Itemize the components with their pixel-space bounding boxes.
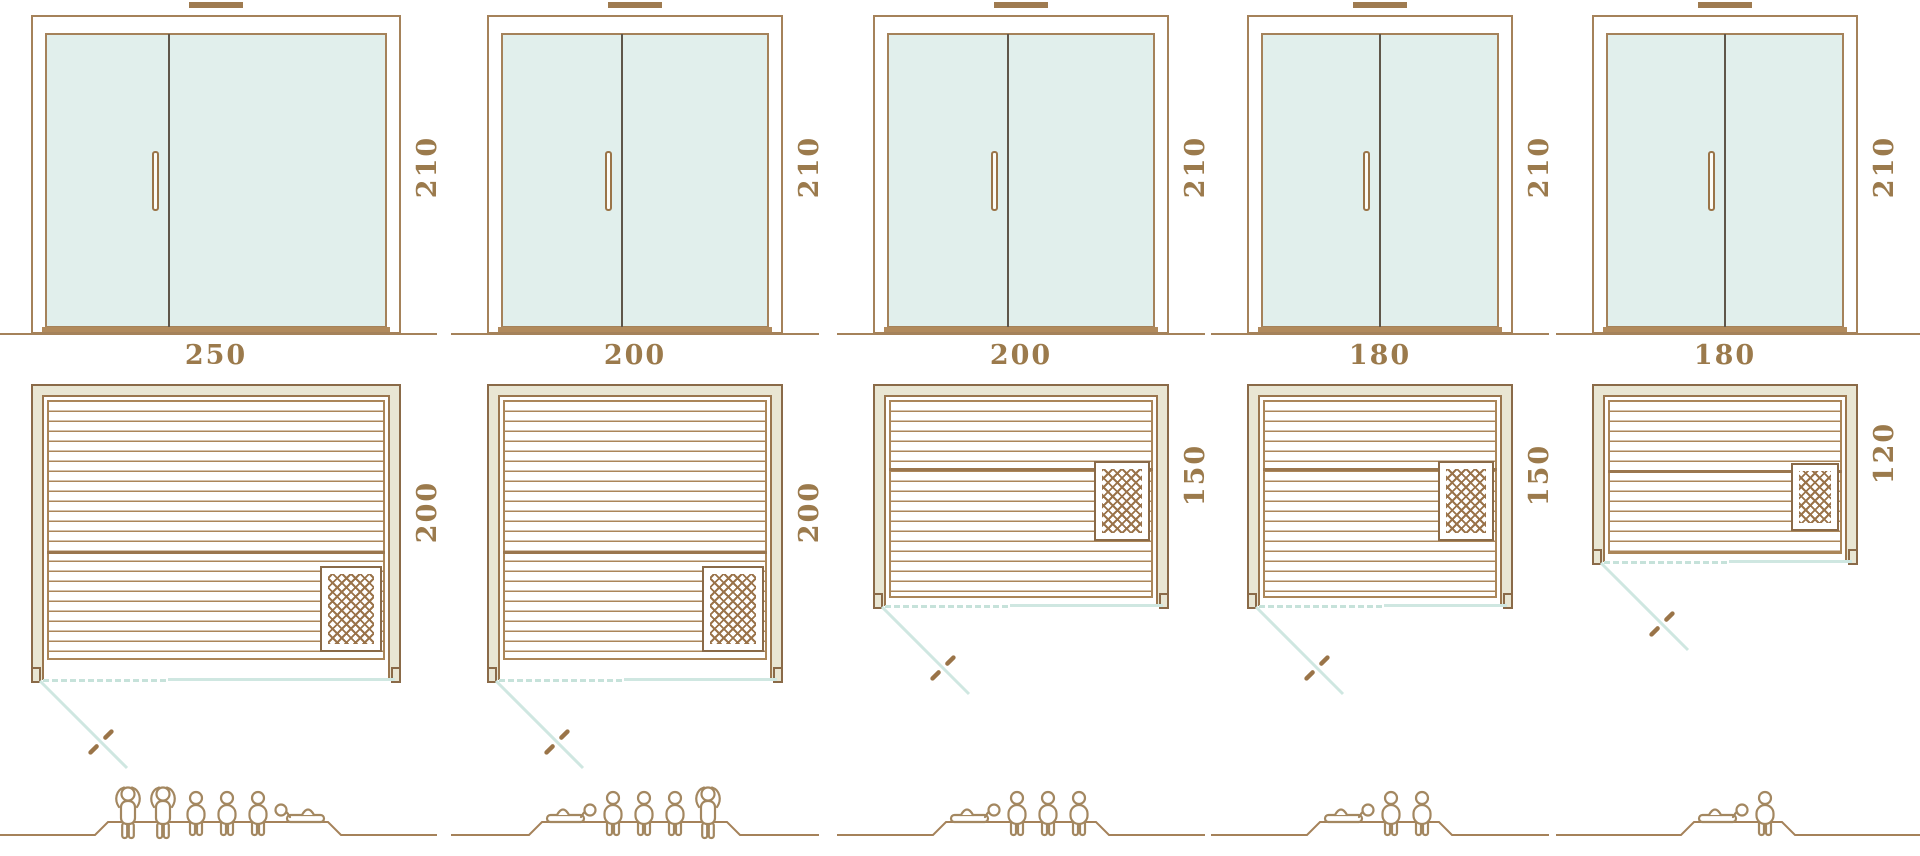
height-dimension-label: 210 <box>1870 122 1900 212</box>
door-sill <box>1258 327 1502 332</box>
door-divider-line <box>1724 34 1726 327</box>
person-sitting-icon <box>636 792 653 835</box>
height-dimension-label: 210 <box>1525 122 1555 212</box>
door-front-elevation <box>873 15 1169 334</box>
glass-door-panels <box>45 33 387 328</box>
height-dimension-label: 210 <box>413 122 443 212</box>
depth-dimension-label: 150 <box>1181 430 1211 520</box>
plan-interior <box>42 395 390 680</box>
capacity-figures <box>837 786 1205 844</box>
person-sitting-icon <box>667 792 684 835</box>
person-lying-icon <box>547 805 596 823</box>
plan-interior <box>884 395 1158 606</box>
capacity-figures <box>1211 786 1549 844</box>
person-standing-icon <box>696 788 719 839</box>
capacity-ground-line <box>1211 822 1549 835</box>
heater-stones-lattice <box>1799 471 1831 523</box>
glass-front-line <box>168 678 395 681</box>
depth-dimension-label: 200 <box>413 467 443 557</box>
heater <box>1791 463 1839 531</box>
person-sitting-icon <box>219 792 236 835</box>
roof-vent-bar <box>1353 2 1407 8</box>
glass-door-panels <box>1261 33 1499 328</box>
person-lying-icon <box>1699 805 1748 823</box>
glass-door-panels <box>887 33 1155 328</box>
person-standing-icon <box>151 788 174 839</box>
roof-vent-bar <box>608 2 662 8</box>
door-sill <box>884 327 1158 332</box>
door-handle <box>605 151 612 211</box>
glass-door-panels <box>501 33 769 328</box>
width-dimension-label: 200 <box>487 341 783 371</box>
glass-front-line <box>1384 604 1507 607</box>
glass-front-line <box>1729 560 1852 563</box>
roof-vent-bar <box>1698 2 1752 8</box>
bench-edge-line <box>503 551 767 554</box>
person-lying-icon <box>1325 805 1374 823</box>
open-door-leaf-line <box>496 681 583 768</box>
glass-door-panels <box>1606 33 1844 328</box>
person-sitting-icon <box>188 792 205 835</box>
door-front-elevation <box>1247 15 1513 334</box>
heater-stones-lattice <box>328 574 374 644</box>
plan-interior <box>498 395 772 680</box>
capacity-ground-line <box>0 822 437 835</box>
person-sitting-icon <box>1757 792 1774 835</box>
door-front-elevation <box>487 15 783 334</box>
depth-dimension-label: 200 <box>795 467 825 557</box>
heater <box>1094 461 1150 541</box>
bench-edge-line <box>47 551 385 554</box>
heater-stones-lattice <box>1446 469 1486 533</box>
door-handle <box>1708 151 1715 211</box>
door-handle <box>991 151 998 211</box>
person-lying-icon <box>951 805 1000 823</box>
glass-front-line <box>624 678 777 681</box>
door-divider-line <box>1379 34 1381 327</box>
door-swing-open <box>1255 606 1395 726</box>
person-standing-icon <box>116 788 139 839</box>
height-dimension-label: 210 <box>1181 122 1211 212</box>
door-handle <box>1363 151 1370 211</box>
glass-front-line <box>1010 604 1163 607</box>
capacity-figures <box>451 786 819 844</box>
width-dimension-label: 180 <box>1247 341 1513 371</box>
door-divider-line <box>1007 34 1009 327</box>
open-door-leaf-line <box>1256 607 1343 694</box>
person-sitting-icon <box>250 792 267 835</box>
person-sitting-icon <box>605 792 622 835</box>
door-sill <box>1603 327 1847 332</box>
capacity-figures <box>0 786 437 844</box>
floor-plan <box>31 384 401 680</box>
plan-interior <box>1258 395 1502 606</box>
door-handle <box>152 151 159 211</box>
door-swing-open <box>881 606 1021 726</box>
heater-stones-lattice <box>1102 469 1142 533</box>
open-door-leaf-line <box>40 681 127 768</box>
floor-plan <box>1247 384 1513 606</box>
door-swing-open <box>1600 562 1740 682</box>
width-dimension-label: 180 <box>1592 341 1858 371</box>
roof-vent-bar <box>189 2 243 8</box>
door-sill <box>42 327 390 332</box>
depth-dimension-label: 120 <box>1870 408 1900 498</box>
door-divider-line <box>168 34 170 327</box>
capacity-figures <box>1556 786 1920 844</box>
person-lying-icon <box>276 805 325 823</box>
door-swing-open <box>39 680 179 800</box>
width-dimension-label: 200 <box>873 341 1169 371</box>
heater <box>320 566 382 652</box>
floor-plan <box>487 384 783 680</box>
roof-vent-bar <box>994 2 1048 8</box>
heater-stones-lattice <box>710 574 756 644</box>
person-sitting-icon <box>1071 792 1088 835</box>
sauna-size-comparison-diagram: 250 210 200 <box>0 0 1920 856</box>
plan-interior <box>1603 395 1847 562</box>
floor-plan <box>873 384 1169 606</box>
floor-plan <box>1592 384 1858 562</box>
open-door-leaf-line <box>1601 563 1688 650</box>
capacity-ground-line <box>451 822 819 835</box>
capacity-ground-line <box>1556 822 1920 835</box>
heater <box>1438 461 1494 541</box>
heater <box>702 566 764 652</box>
person-sitting-icon <box>1414 792 1431 835</box>
door-front-elevation <box>1592 15 1858 334</box>
open-door-leaf-line <box>882 607 969 694</box>
door-swing-open <box>495 680 635 800</box>
width-dimension-label: 250 <box>31 341 401 371</box>
depth-dimension-label: 150 <box>1525 430 1555 520</box>
person-sitting-icon <box>1383 792 1400 835</box>
height-dimension-label: 210 <box>795 122 825 212</box>
person-sitting-icon <box>1040 792 1057 835</box>
door-front-elevation <box>31 15 401 334</box>
person-sitting-icon <box>1009 792 1026 835</box>
door-sill <box>498 327 772 332</box>
door-divider-line <box>621 34 623 327</box>
